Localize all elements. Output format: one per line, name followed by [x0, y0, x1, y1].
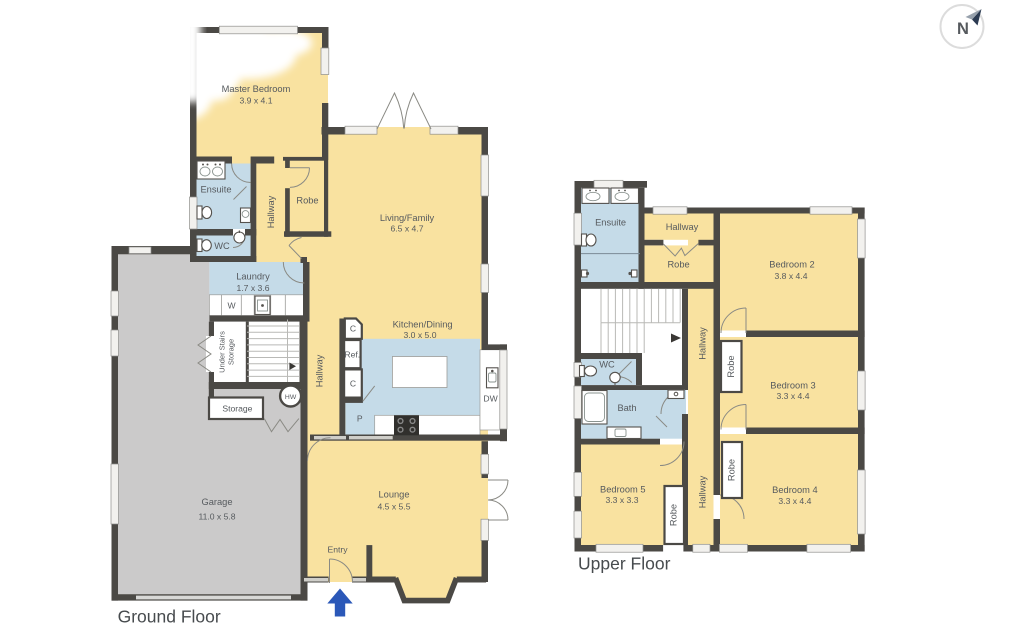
svg-text:Ensuite: Ensuite — [200, 185, 231, 195]
svg-text:DW: DW — [483, 394, 498, 404]
svg-text:Entry: Entry — [327, 545, 348, 555]
svg-text:3.0 x 5.0: 3.0 x 5.0 — [404, 330, 437, 340]
svg-text:Master Bedroom: Master Bedroom — [222, 84, 291, 94]
svg-text:W: W — [227, 301, 236, 311]
svg-text:Lounge: Lounge — [378, 490, 409, 500]
svg-text:HW: HW — [285, 394, 297, 401]
svg-text:1.7 x 3.6: 1.7 x 3.6 — [237, 283, 270, 293]
svg-text:Living/Family: Living/Family — [380, 213, 435, 223]
svg-text:Bedroom 3: Bedroom 3 — [770, 381, 815, 391]
svg-text:4.5 x 5.5: 4.5 x 5.5 — [378, 502, 411, 512]
svg-text:Ensuite: Ensuite — [595, 218, 626, 228]
svg-text:6.5 x 4.7: 6.5 x 4.7 — [391, 224, 424, 234]
svg-text:WC: WC — [599, 360, 615, 370]
svg-text:Hallway: Hallway — [266, 195, 276, 228]
svg-text:Bedroom 4: Bedroom 4 — [772, 485, 817, 495]
svg-text:C: C — [350, 324, 356, 334]
svg-text:Robe: Robe — [296, 196, 318, 206]
svg-text:Kitchen/Dining: Kitchen/Dining — [393, 320, 453, 330]
svg-text:3.3 x 4.4: 3.3 x 4.4 — [777, 391, 810, 401]
svg-text:C: C — [350, 379, 356, 389]
svg-text:Robe: Robe — [727, 459, 737, 481]
svg-text:Robe: Robe — [667, 260, 689, 270]
svg-text:Bedroom 5: Bedroom 5 — [600, 485, 645, 495]
svg-text:Hallway: Hallway — [666, 222, 699, 232]
svg-text:3.3 x 3.3: 3.3 x 3.3 — [606, 495, 639, 505]
svg-text:P: P — [357, 414, 363, 424]
svg-text:Robe: Robe — [726, 355, 736, 377]
svg-text:3.8 x 4.4: 3.8 x 4.4 — [775, 271, 808, 281]
svg-text:Hallway: Hallway — [698, 475, 708, 508]
svg-text:Storage: Storage — [222, 404, 252, 414]
svg-text:Bedroom 2: Bedroom 2 — [769, 260, 814, 270]
svg-text:N: N — [957, 20, 969, 38]
svg-text:Under Stairs: Under Stairs — [218, 331, 227, 373]
svg-text:Garage: Garage — [201, 497, 232, 507]
svg-text:Ref.: Ref. — [344, 350, 360, 360]
svg-text:Upper Floor: Upper Floor — [578, 554, 671, 574]
svg-text:3.9 x 4.1: 3.9 x 4.1 — [240, 96, 273, 106]
svg-text:Storage: Storage — [227, 339, 236, 365]
svg-text:11.0 x 5.8: 11.0 x 5.8 — [198, 512, 235, 522]
svg-text:Robe: Robe — [669, 504, 679, 526]
svg-text:Hallway: Hallway — [698, 327, 708, 360]
svg-text:Hallway: Hallway — [315, 354, 325, 387]
svg-text:Ground Floor: Ground Floor — [118, 607, 221, 627]
svg-text:Laundry: Laundry — [236, 272, 270, 282]
svg-text:WC: WC — [214, 241, 230, 251]
svg-text:Bath: Bath — [617, 403, 636, 413]
svg-text:3.3 x 4.4: 3.3 x 4.4 — [778, 496, 811, 506]
